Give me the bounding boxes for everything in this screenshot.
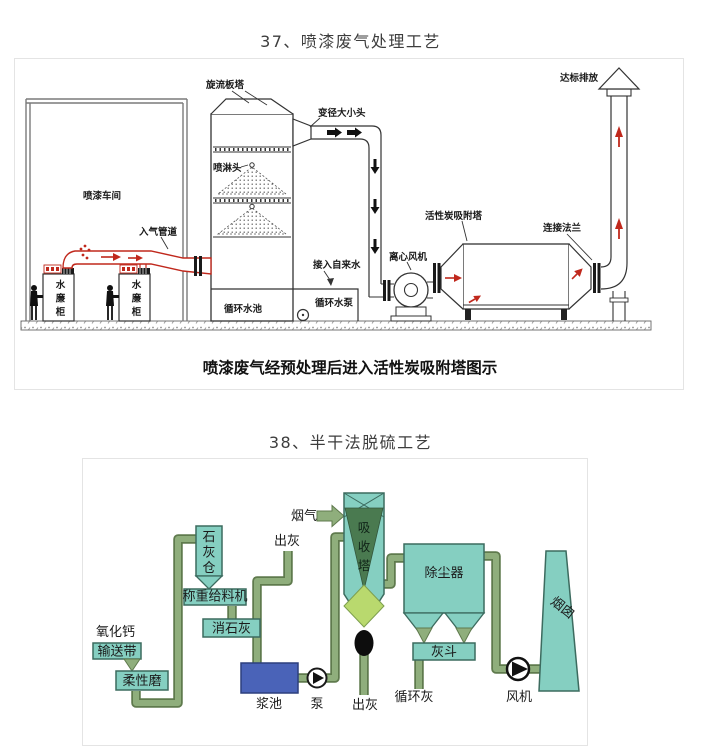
stack-cone-icon [599,68,639,89]
swirl-plate-tower [211,99,293,321]
label-centrifugal-fan: 离心风机 [389,251,428,263]
label-pool-pump: 循环水泵 [315,297,354,309]
spray-nozzle-icon [250,163,254,167]
label-slurry-tank: 浆池 [256,697,282,712]
activated-carbon-tower [433,244,601,320]
worker-2 [106,285,119,320]
centrifugal-fan [391,273,433,321]
diagram1-caption: 喷漆废气经预处理后进入活性炭吸附塔图示 [203,358,498,377]
desulfurization-svg: 氧化钙 输送带 柔性磨 石灰仓 称重给料机 消石灰 出灰 浆池 泵 烟气 吸收塔… [83,459,587,745]
label-conveyor-belt: 输送带 [97,644,136,660]
flue-gas-arrow-icon [317,506,344,527]
chimney-shape [539,551,579,691]
label-calcium-oxide: 氧化钙 [96,625,135,640]
tap-water-leader [324,271,330,280]
fan-leader [407,262,411,270]
label-discharge: 达标排放 [560,72,599,84]
section-heading-37: 37、喷漆废气处理工艺 [0,28,701,52]
label-booth-2: 水廉柜 [131,279,142,318]
carbon-tower-leader [462,221,467,241]
label-dust-collector: 除尘器 [424,566,463,581]
label-carbon-tower: 活性炭吸附塔 [425,210,483,222]
exhaust-stack [599,68,639,321]
fan-icon [507,658,529,680]
label-ash-out-bottom: 出灰 [352,698,378,713]
worker-1 [30,285,43,320]
discharge-valve-icon [355,630,374,656]
label-fan: 风机 [506,690,532,705]
document-page: 37、喷漆废气处理工艺 喷漆车间 [0,0,701,756]
hopper-arrow-icon [416,628,432,643]
label-reducer: 变径大小头 [318,107,366,119]
up-flow-arrows [615,126,623,239]
label-circulating-ash: 循环灰 [394,690,433,705]
outlet-pipe [293,119,394,301]
label-flexible-mill: 柔性磨 [122,674,161,689]
label-spray-nozzle: 喷淋头 [213,162,242,174]
inlet-duct-leader [161,237,168,249]
label-slaked-lime: 消石灰 [212,622,251,637]
silo-funnel-icon [196,576,222,589]
ground-hatch [21,321,651,330]
label-lime-silo: 石灰仓 [202,530,215,576]
pump-icon [308,669,327,688]
section-heading-38: 38、半干法脱硫工艺 [0,429,701,453]
paint-waste-gas-svg: 喷漆车间 水廉柜 [15,59,683,389]
label-inlet-duct: 入气管道 [138,226,178,238]
slurry-tank-box [241,663,298,693]
dust-collector [404,544,484,643]
label-booth-1: 水廉柜 [55,279,66,318]
label-ash-out-top: 出灰 [274,534,300,549]
label-ash-hopper: 灰斗 [431,645,457,660]
label-absorber-tower: 吸收塔 [358,520,371,573]
label-weighing-feeder: 称重给料机 [182,589,247,605]
label-pool: 循环水池 [224,303,263,315]
hopper-arrow-icon [456,628,472,643]
absorber-tower [344,493,384,656]
label-flange: 连接法兰 [543,222,582,234]
diagram-paint-waste-gas: 喷漆车间 水廉柜 [14,58,684,390]
label-flue-gas: 烟气 [291,508,317,524]
label-workshop: 喷漆车间 [83,190,121,202]
diagram-semi-dry-desulfurization: 氧化钙 输送带 柔性磨 石灰仓 称重给料机 消石灰 出灰 浆池 泵 烟气 吸收塔… [82,458,588,746]
label-pump: 泵 [310,697,323,712]
spray-booth-1: 水廉柜 [43,265,74,321]
feed-funnel-icon [124,659,140,671]
label-tap-water: 接入自来水 [313,259,361,271]
spray-booth-2: 水廉柜 [119,265,150,321]
label-swirl-tower: 旋流板塔 [205,79,245,91]
